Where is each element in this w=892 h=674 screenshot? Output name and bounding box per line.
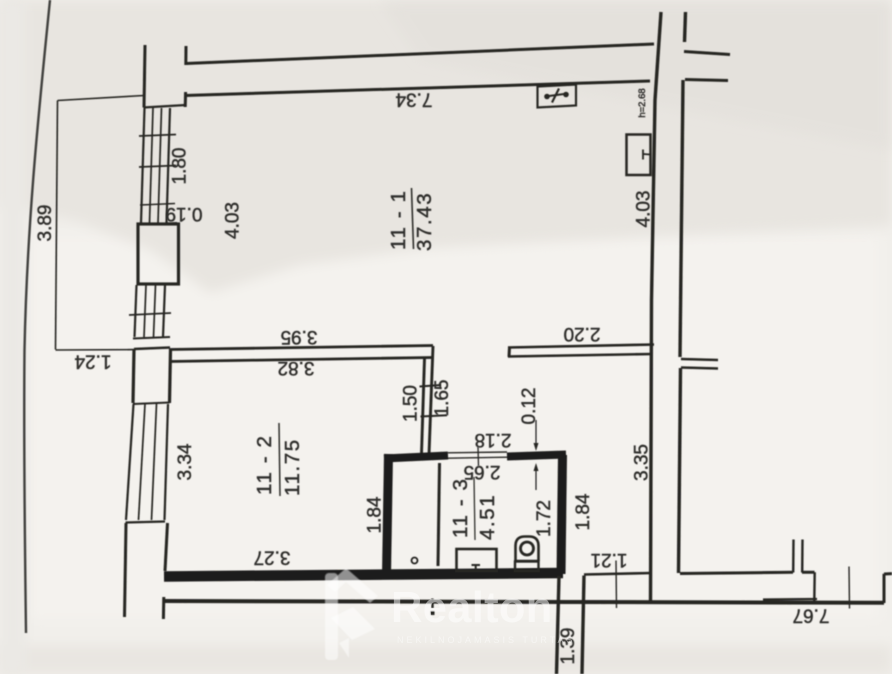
svg-text:NEKILNOJAMASIS TURTAS: NEKILNOJAMASIS TURTAS [397,635,576,645]
svg-text:3.95: 3.95 [281,326,318,347]
svg-text:4.03: 4.03 [223,202,244,239]
svg-text:1.80: 1.80 [170,148,191,185]
svg-text:3.34: 3.34 [175,443,196,480]
svg-text:1.84: 1.84 [365,496,386,533]
svg-text:3.27: 3.27 [254,547,291,568]
svg-text:7.67: 7.67 [793,605,830,626]
svg-text:2.18: 2.18 [475,429,512,450]
svg-text:3.35: 3.35 [632,444,653,481]
svg-text:1.21: 1.21 [591,549,628,570]
svg-text:7.34: 7.34 [395,89,432,110]
svg-text:1.39: 1.39 [558,628,579,665]
svg-text:11 - 3: 11 - 3 [449,478,472,539]
svg-text:11 - 1: 11 - 1 [387,190,410,251]
svg-text:3.82: 3.82 [278,357,315,378]
svg-text:4.03: 4.03 [634,191,655,228]
svg-text:0.19: 0.19 [166,203,203,224]
svg-text:Realton: Realton [391,584,553,632]
svg-text:1.65: 1.65 [432,380,453,417]
svg-text:3.89: 3.89 [35,205,56,242]
svg-text:1.84: 1.84 [573,493,594,530]
svg-text:h=2.68: h=2.68 [637,88,648,117]
svg-text:4.51: 4.51 [476,494,499,540]
svg-text:1.72: 1.72 [534,500,555,537]
svg-text:1.50: 1.50 [401,385,422,422]
svg-text:1.24: 1.24 [74,351,111,372]
svg-text:2.65: 2.65 [464,461,501,482]
svg-text:11.75: 11.75 [281,438,304,496]
svg-text:2.20: 2.20 [564,323,601,344]
svg-text:0.12: 0.12 [519,388,540,425]
svg-text:11 - 2: 11 - 2 [253,435,276,496]
svg-text:37.43: 37.43 [413,192,436,251]
